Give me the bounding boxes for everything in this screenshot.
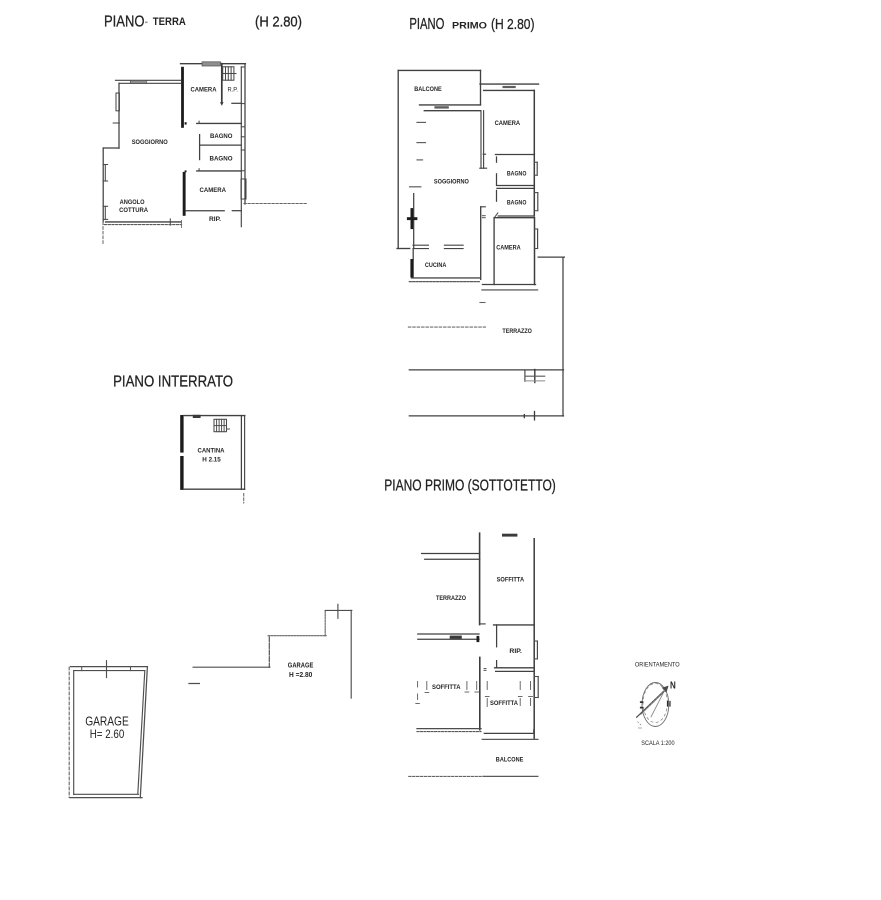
- svg-text:CAMERA: CAMERA: [495, 120, 521, 127]
- svg-text:SOGGIORNO: SOGGIORNO: [132, 139, 168, 146]
- svg-text:CUCINA: CUCINA: [425, 262, 447, 269]
- svg-text:(H 2.80): (H 2.80): [255, 15, 302, 31]
- svg-text:SOFFITTA: SOFFITTA: [497, 576, 525, 583]
- svg-text:TERRA: TERRA: [153, 16, 186, 28]
- svg-text:SOGGIORNO: SOGGIORNO: [434, 179, 469, 186]
- svg-text:GARAGE: GARAGE: [288, 662, 314, 669]
- svg-text:PIANO: PIANO: [104, 14, 145, 31]
- svg-text:BAGNO: BAGNO: [210, 156, 233, 163]
- svg-text:RIP.: RIP.: [509, 648, 522, 655]
- svg-text:H =2.80: H =2.80: [289, 672, 312, 679]
- svg-text:H 2.15: H 2.15: [202, 456, 221, 463]
- svg-text:SOFFITTA: SOFFITTA: [432, 684, 461, 691]
- svg-text:BAGNO: BAGNO: [507, 171, 527, 178]
- svg-text:ANGOLO: ANGOLO: [120, 199, 145, 206]
- svg-text:COTTURA: COTTURA: [119, 207, 148, 214]
- svg-text:ORIENTAMENTO: ORIENTAMENTO: [635, 662, 680, 669]
- svg-text:RIP.: RIP.: [209, 216, 221, 223]
- svg-text:(H 2.80): (H 2.80): [491, 17, 535, 33]
- svg-text:H= 2.60: H= 2.60: [90, 727, 125, 741]
- svg-text:R.P.: R.P.: [228, 86, 239, 93]
- svg-text:CANTINA: CANTINA: [198, 448, 225, 455]
- svg-text:SOFFITTA: SOFFITTA: [490, 700, 518, 707]
- svg-text:TERRAZZO: TERRAZZO: [436, 595, 466, 602]
- svg-text:PIANO INTERRATO: PIANO INTERRATO: [113, 374, 233, 391]
- svg-text:BALCONE: BALCONE: [496, 756, 524, 763]
- svg-text:PIANO PRIMO (SOTTOTETTO): PIANO PRIMO (SOTTOTETTO): [384, 478, 556, 495]
- svg-text:CAMERA: CAMERA: [496, 245, 521, 252]
- svg-text:CAMERA: CAMERA: [200, 187, 227, 194]
- svg-text:BAGNO: BAGNO: [507, 199, 527, 206]
- svg-text:BALCONE: BALCONE: [414, 86, 442, 93]
- svg-text:BAGNO: BAGNO: [210, 133, 233, 140]
- svg-text:PRIMO: PRIMO: [452, 21, 487, 31]
- svg-text:SCALA 1:200: SCALA 1:200: [641, 740, 675, 747]
- svg-text:PIANO: PIANO: [409, 16, 444, 33]
- svg-text:CAMERA: CAMERA: [191, 86, 217, 93]
- svg-text:TERRAZZO: TERRAZZO: [502, 328, 532, 335]
- svg-text:N: N: [670, 681, 676, 692]
